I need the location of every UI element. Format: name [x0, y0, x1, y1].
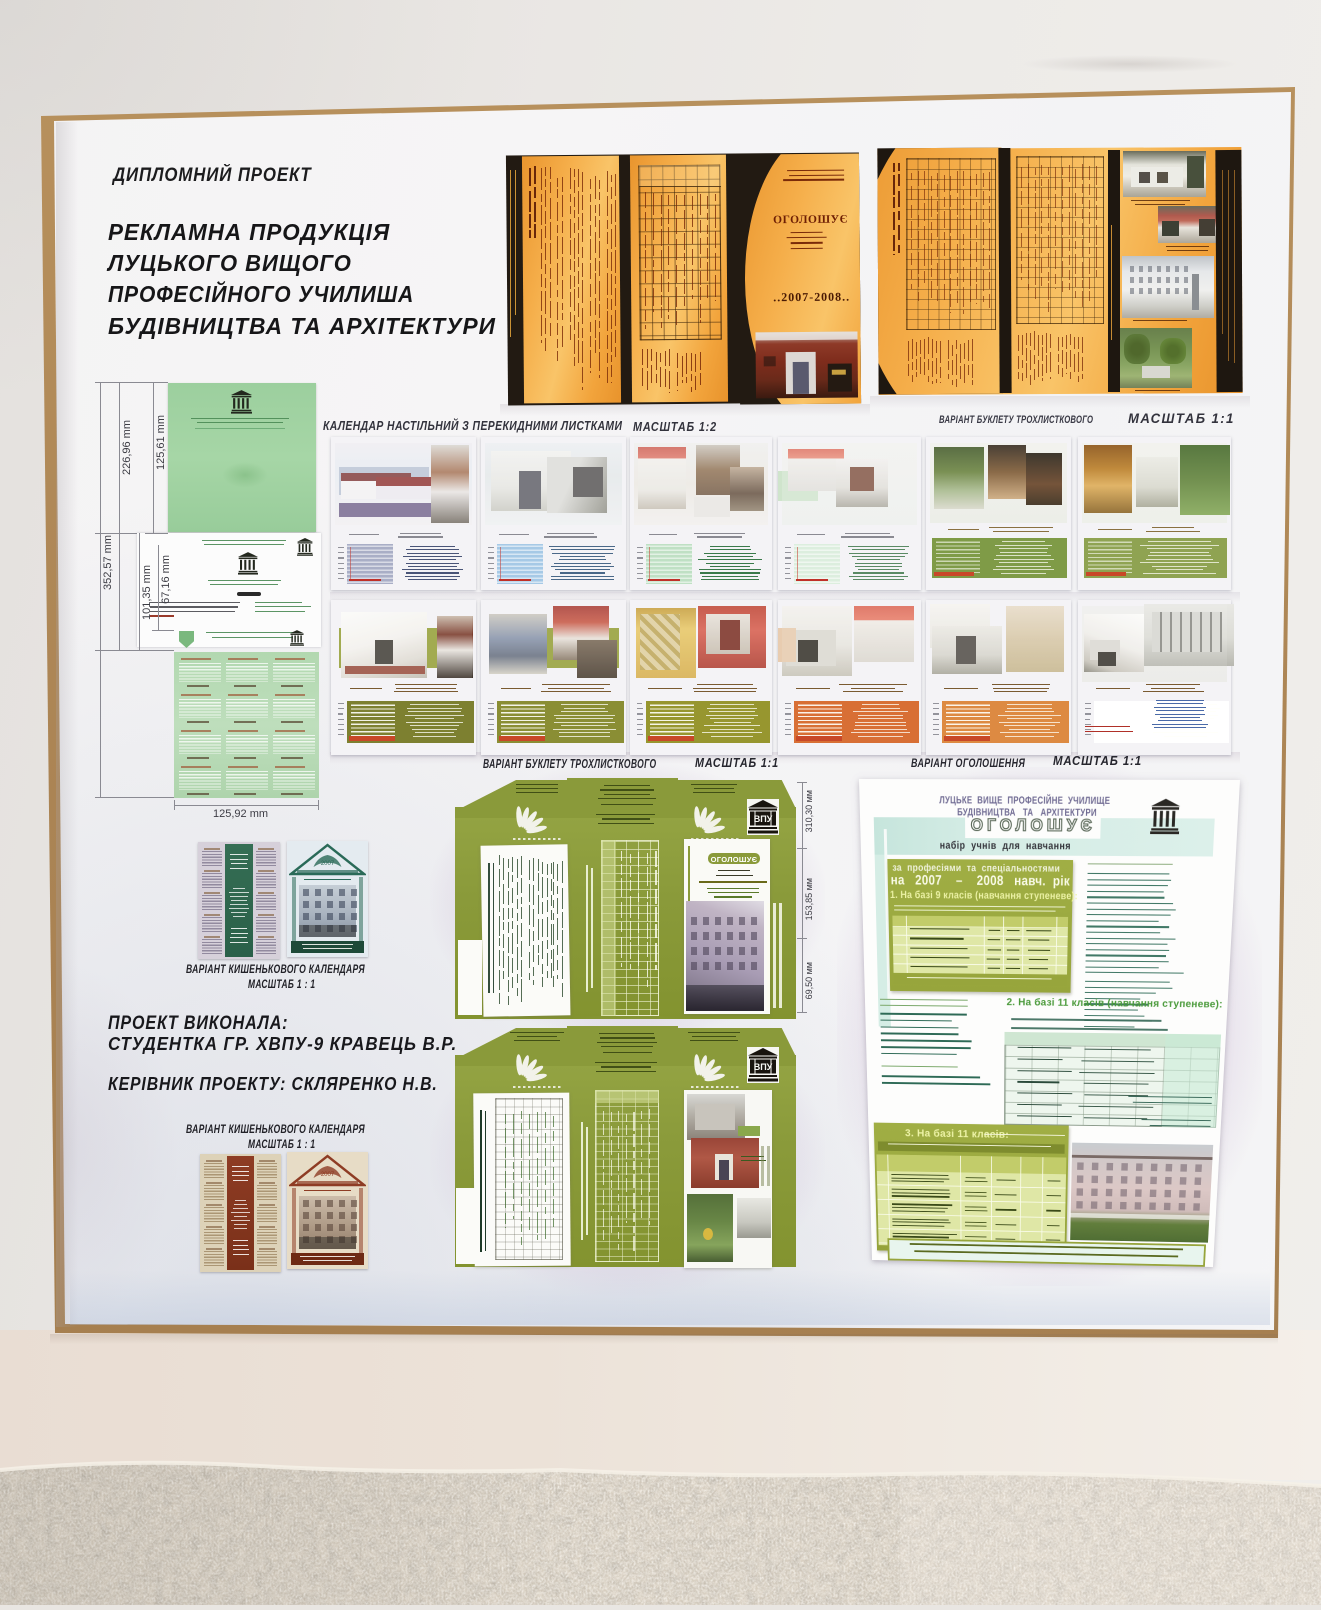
svg-text:ВПУ: ВПУ: [754, 814, 773, 824]
svg-text:2007: 2007: [321, 861, 335, 867]
svg-text:ВПУ: ВПУ: [754, 1062, 773, 1072]
svg-text:2007: 2007: [321, 1172, 335, 1178]
